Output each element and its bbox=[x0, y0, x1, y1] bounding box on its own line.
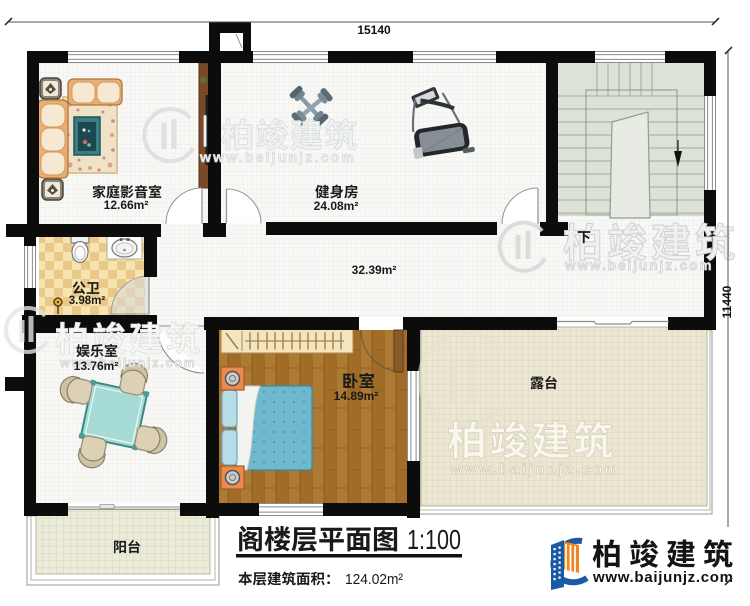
svg-text:www.baijunjz.com: www.baijunjz.com bbox=[450, 461, 620, 478]
svg-text:www.baijunjz.com: www.baijunjz.com bbox=[592, 569, 733, 586]
svg-text:32.39m²: 32.39m² bbox=[352, 263, 397, 277]
svg-text:11440: 11440 bbox=[720, 285, 734, 318]
svg-text:15140: 15140 bbox=[357, 23, 391, 37]
svg-text:3.98m²: 3.98m² bbox=[69, 295, 106, 307]
svg-text:13.76m²: 13.76m² bbox=[74, 359, 119, 373]
svg-text:1:100: 1:100 bbox=[407, 524, 461, 555]
svg-text:14.89m²: 14.89m² bbox=[334, 389, 379, 403]
svg-text:www.beijunjz.com: www.beijunjz.com bbox=[199, 149, 356, 165]
svg-text:24.08m²: 24.08m² bbox=[314, 199, 359, 213]
svg-text:12.66m²: 12.66m² bbox=[104, 198, 149, 212]
svg-text:www.beijunjz.com: www.beijunjz.com bbox=[564, 258, 714, 273]
svg-text:124.02m²: 124.02m² bbox=[345, 571, 403, 588]
